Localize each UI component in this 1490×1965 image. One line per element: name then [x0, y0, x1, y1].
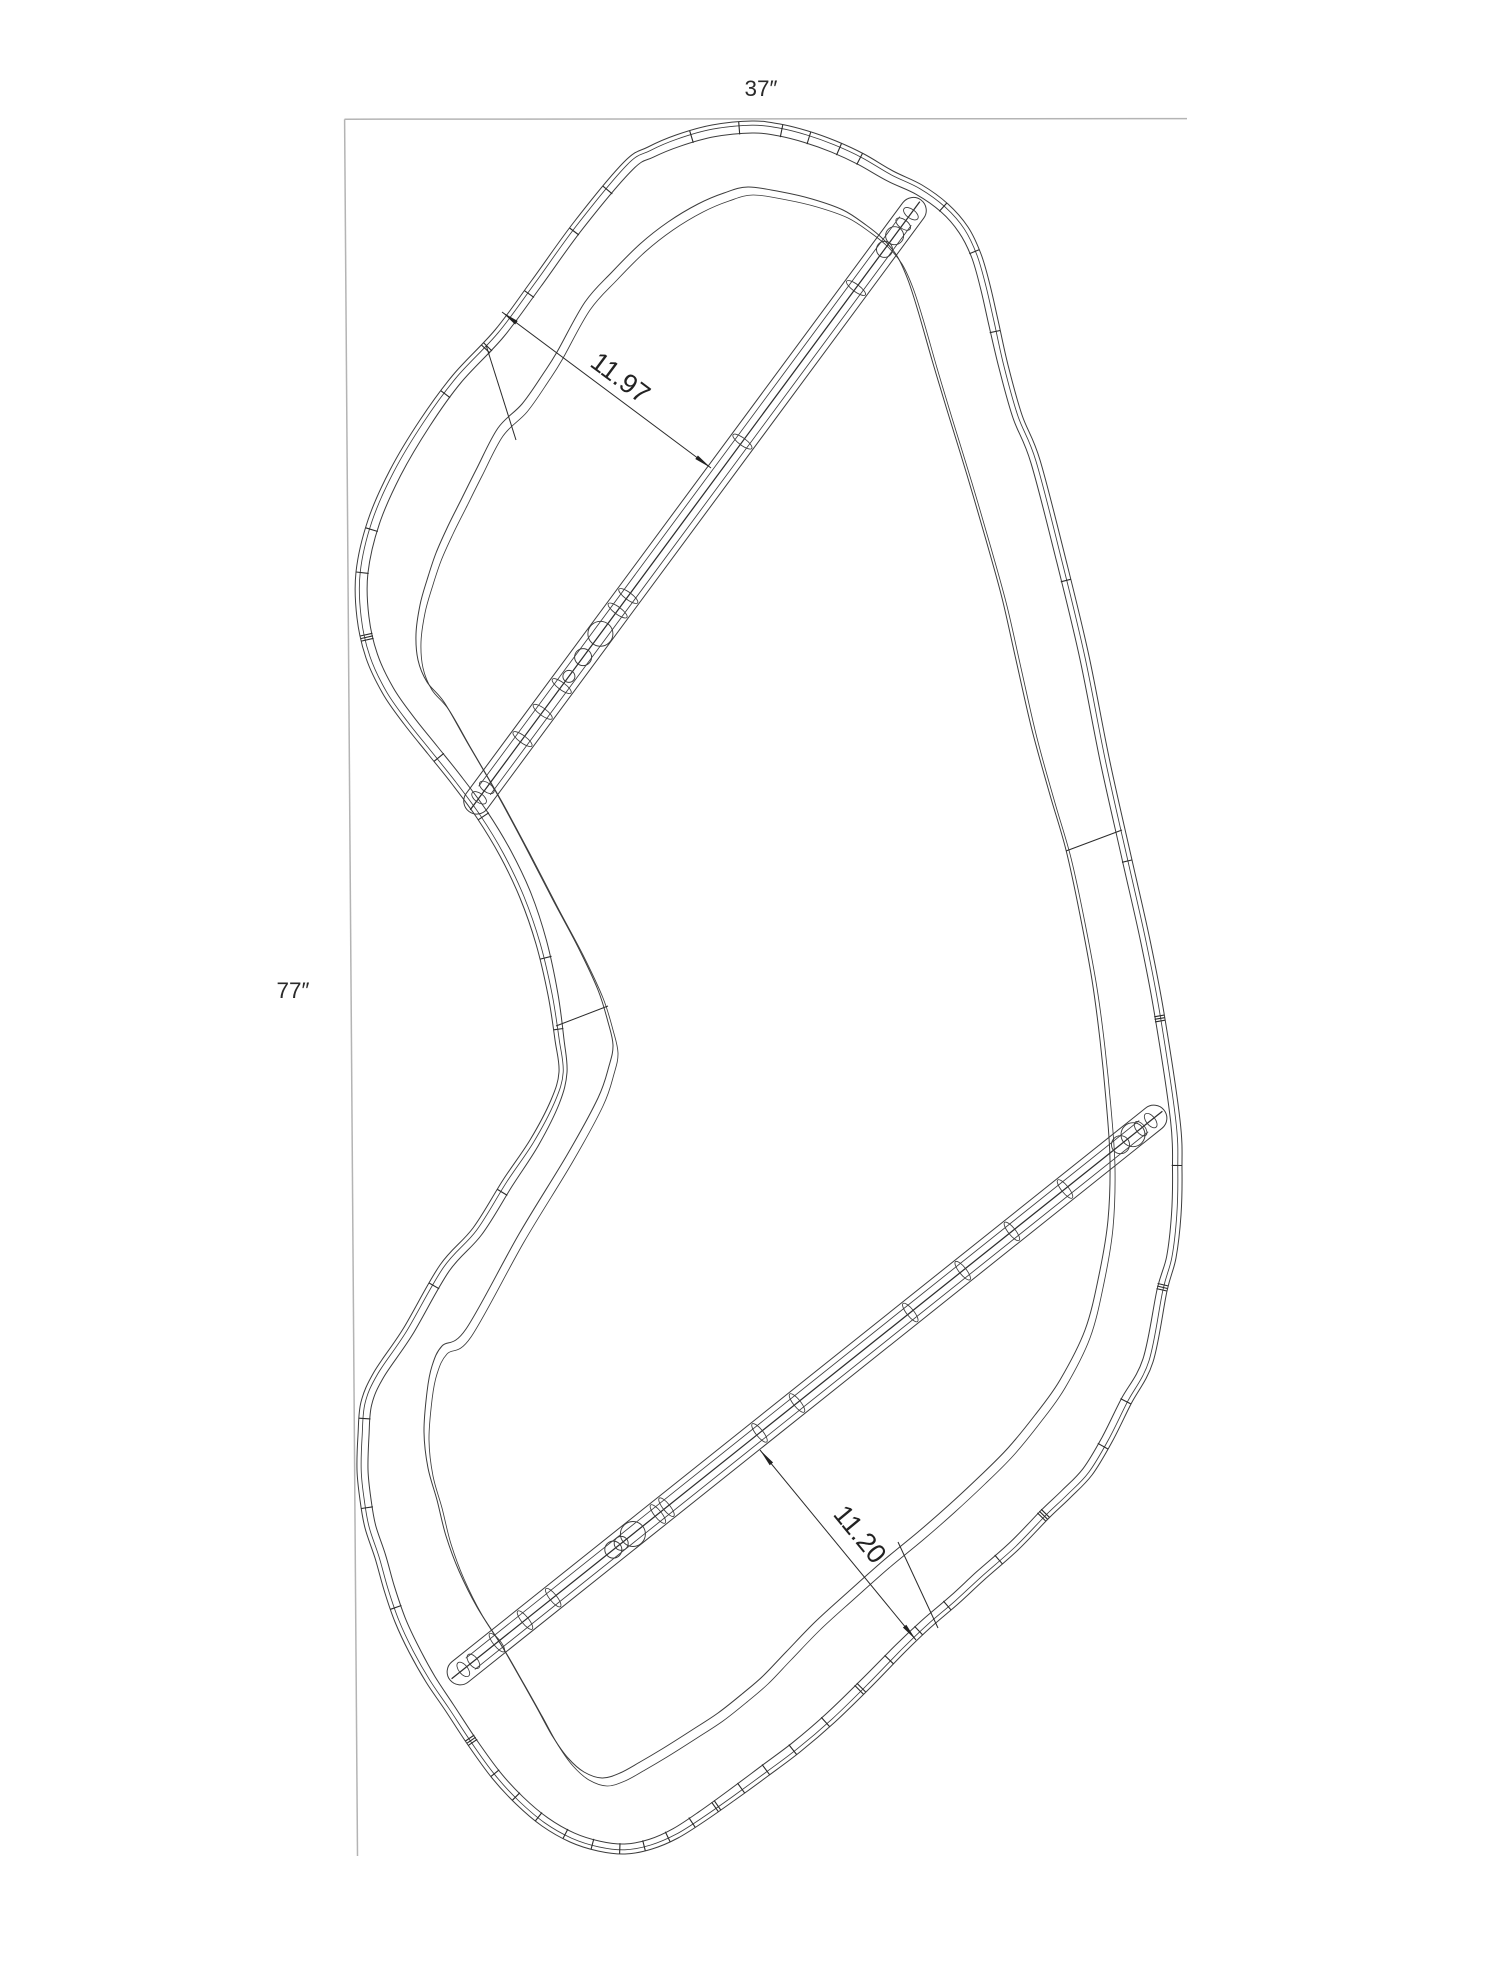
svg-text:77″: 77″: [277, 978, 310, 1003]
svg-text:37″: 37″: [745, 76, 778, 101]
